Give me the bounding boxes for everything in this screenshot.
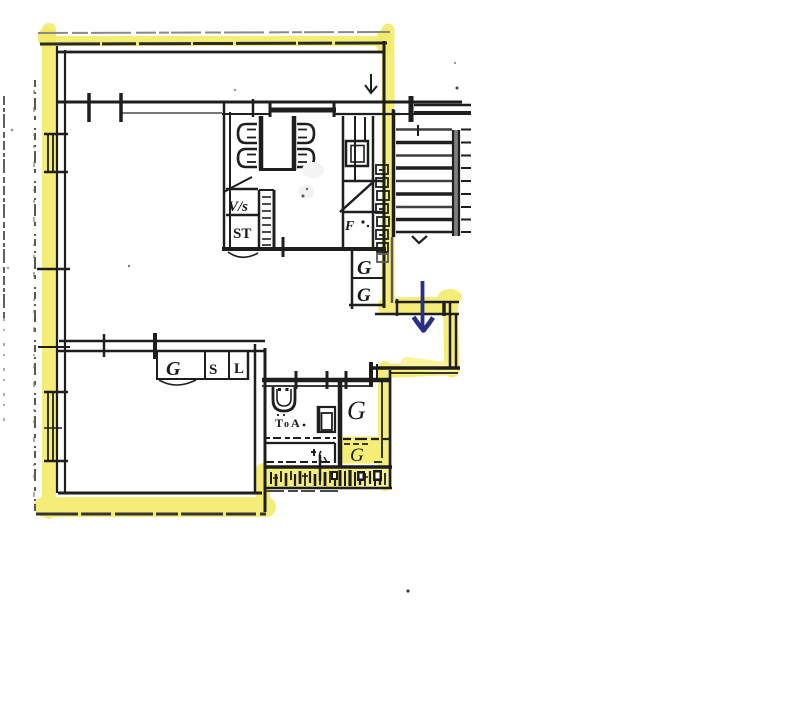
svg-text:F: F xyxy=(344,219,355,234)
svg-text:S: S xyxy=(209,362,217,378)
svg-text:o: o xyxy=(284,419,289,430)
svg-text:L: L xyxy=(234,361,244,377)
svg-text:ST: ST xyxy=(233,226,251,242)
svg-text:G: G xyxy=(166,358,181,380)
svg-text:V/s: V/s xyxy=(228,199,248,215)
svg-text:A: A xyxy=(291,416,300,430)
svg-text:G: G xyxy=(357,285,371,306)
svg-text:G: G xyxy=(357,257,372,279)
svg-text:T: T xyxy=(275,416,283,430)
svg-text:G: G xyxy=(350,445,364,466)
svg-text:G: G xyxy=(347,396,366,425)
